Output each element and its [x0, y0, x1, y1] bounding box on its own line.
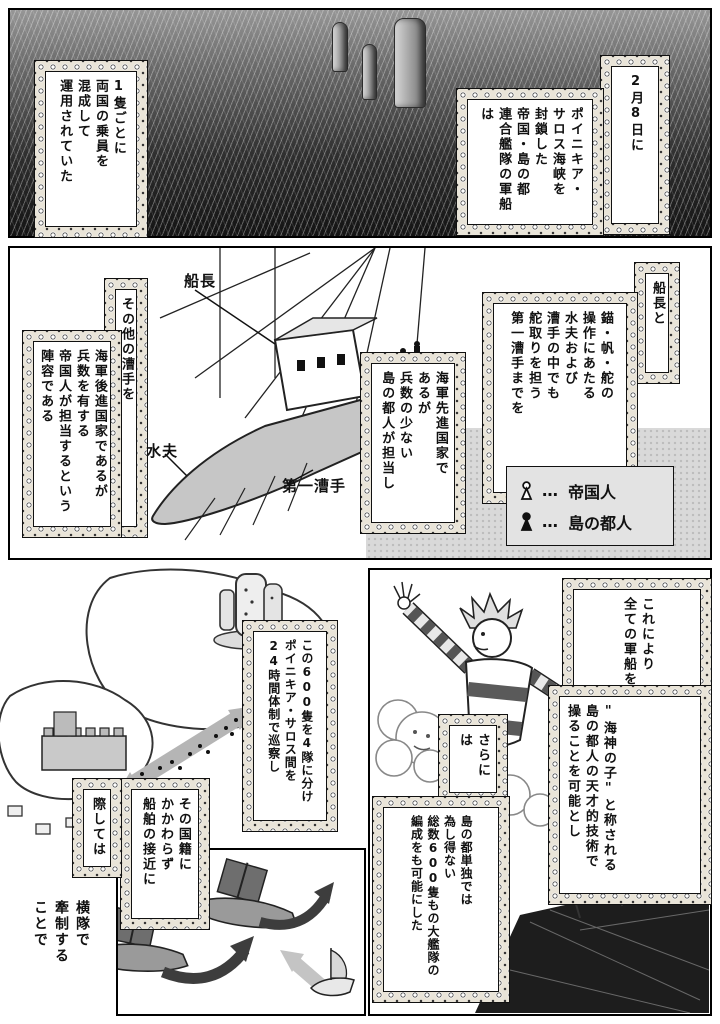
- caption-box-patrol: この600隻を4隊に分け ポイニキア・サロス間を 24時間体制で巡察し: [242, 620, 338, 832]
- caption-text-fleet-body: 島の都単独では 為し得ない 総数600隻もの大艦隊の 編成をも可能にした: [408, 815, 474, 984]
- caption-text-captain-head: 船長と: [648, 281, 666, 365]
- tower-art: [332, 22, 348, 72]
- islander-person-icon: [519, 512, 534, 532]
- caption-box-approach-main: その国籍に かかわらず 船舶の接近に: [120, 778, 210, 930]
- legend-dots: …: [542, 483, 560, 499]
- imperial-person-icon: [519, 481, 534, 501]
- caption-text-mixed-crew: 1隻ごとに 両国の乗員を 混成して 運用されていた: [55, 79, 127, 219]
- caption-text-formation: 横隊で 牽制する ことで: [26, 900, 92, 1018]
- caption-text-approach-main: その国籍に かかわらず 船舶の接近に: [138, 797, 192, 911]
- crew-legend: … 帝国人 … 島の都人: [506, 466, 674, 546]
- caption-box-other-rowers-body: 海軍後進国家であるが 兵数を有する 帝国人が担当するという 陣容である: [22, 330, 122, 538]
- caption-text-islander-duty: 海軍先進国家で あるが 兵数の少ない 島の都人が担当し: [377, 371, 449, 515]
- label-captain: 船長: [184, 270, 216, 291]
- caption-box-captain-head: 船長と: [634, 262, 680, 384]
- caption-box-islander-duty: 海軍先進国家で あるが 兵数の少ない 島の都人が担当し: [360, 352, 466, 534]
- caption-text-crew-roles: 錨・帆・舵の 操作にあたる 水夫および 漕手の中でも 舵取りを担う 第一漕手まで…: [506, 311, 614, 485]
- caption-text-other-rowers-body: 海軍後進国家であるが 兵数を有する 帝国人が担当するという 陣容である: [36, 349, 108, 519]
- caption-box-date: 2月8日に: [600, 55, 670, 235]
- caption-box-mixed-crew: 1隻ごとに 両国の乗員を 混成して 運用されていた: [34, 60, 148, 238]
- label-first-rower: 第一漕手: [282, 475, 346, 496]
- caption-text-blockade: ポイニキア・ サロス海峡を 封鎖した 帝国・島の都 連合艦隊の軍船は: [476, 107, 584, 217]
- legend-dots: …: [542, 514, 560, 530]
- caption-text-date: 2月8日に: [626, 74, 644, 216]
- legend-row-imperial: … 帝国人: [519, 479, 661, 503]
- label-sailor: 水夫: [146, 440, 178, 461]
- legend-row-islander: … 島の都人: [519, 510, 661, 534]
- caption-text-enable-head: これにより 全ての軍船を: [619, 597, 655, 689]
- caption-text-approach-ext: 際しては: [88, 797, 106, 859]
- caption-text-patrol: この600隻を4隊に分け ポイニキア・サロス間を 24時間体制で巡察し: [265, 639, 315, 813]
- caption-text-enable-body: "海神の子"と称される 島の都人の天才的技術で 操ることを可能とし: [563, 704, 617, 886]
- tower-art: [394, 18, 426, 108]
- manga-page: 2月8日に ポイニキア・ サロス海峡を 封鎖した 帝国・島の都 連合艦隊の軍船は…: [0, 0, 720, 1024]
- caption-box-enable-body: "海神の子"と称される 島の都人の天才的技術で 操ることを可能とし: [548, 685, 712, 905]
- legend-label-imperial: 帝国人: [568, 479, 616, 503]
- caption-box-fleet-head: さらには: [438, 714, 508, 804]
- legend-label-islander: 島の都人: [568, 510, 632, 534]
- caption-box-approach-ext: 際しては: [72, 778, 122, 878]
- caption-text-fleet-head: さらには: [455, 733, 491, 785]
- tower-art: [362, 44, 377, 100]
- caption-box-blockade: ポイニキア・ サロス海峡を 封鎖した 帝国・島の都 連合艦隊の軍船は: [456, 88, 604, 236]
- caption-box-fleet-body: 島の都単独では 為し得ない 総数600隻もの大艦隊の 編成をも可能にした: [372, 796, 510, 1003]
